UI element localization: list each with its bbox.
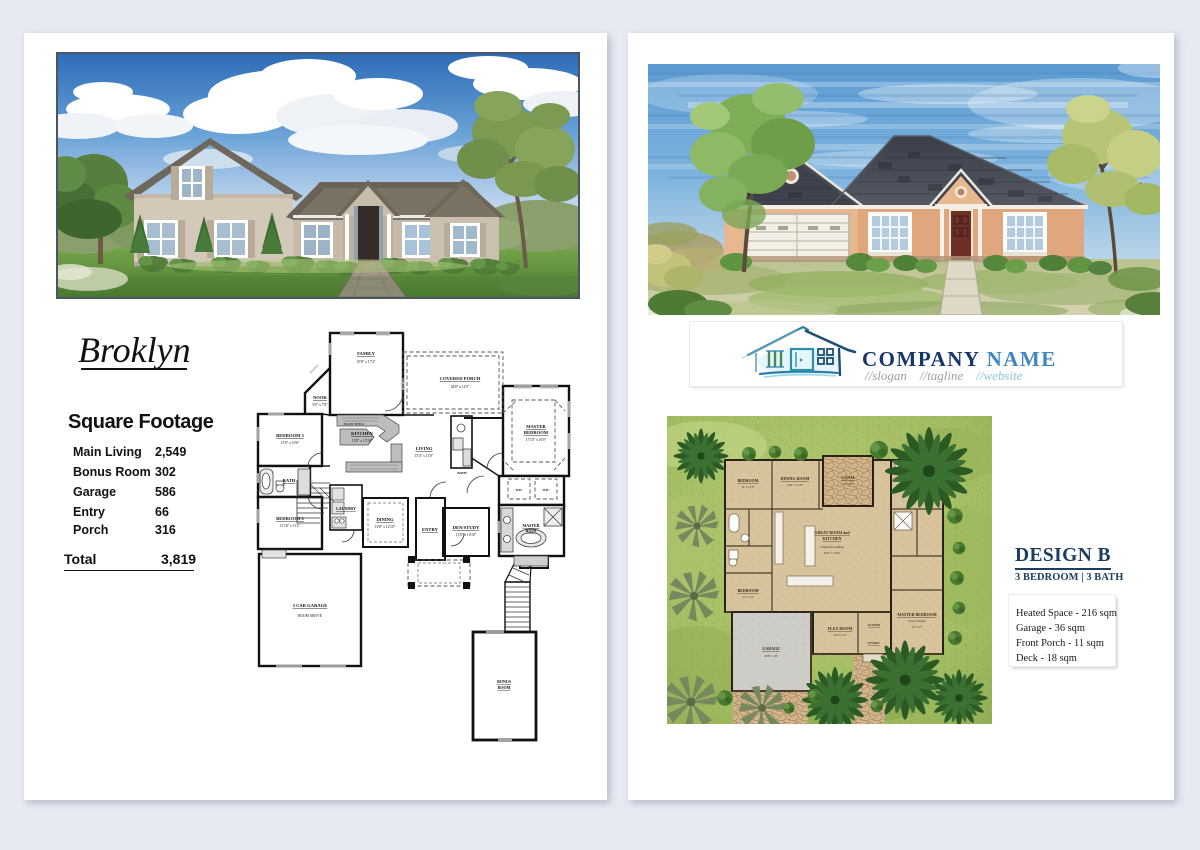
svg-text:LANAI: LANAI <box>842 475 855 480</box>
svg-text:20'4" x 19'4": 20'4" x 19'4" <box>824 551 841 555</box>
svg-text:11' x 13': 11' x 13' <box>743 595 754 599</box>
svg-text:12'6"x12'7": 12'6"x12'7" <box>841 482 857 486</box>
svg-text:LIVING: LIVING <box>416 446 433 451</box>
svg-text:BONUS: BONUS <box>497 679 512 684</box>
svg-text:BEDROOM: BEDROOM <box>737 588 758 593</box>
svg-text:DEN/STUDY: DEN/STUDY <box>453 525 480 530</box>
svg-text:13'0" x 10'10": 13'0" x 10'10" <box>456 533 477 537</box>
svg-text:GARAGE: GARAGE <box>762 646 780 651</box>
svg-text:13'0" x 10'6": 13'0" x 10'6" <box>281 441 300 445</box>
svg-text:DINING: DINING <box>376 517 394 522</box>
svg-text:COVERED PORCH: COVERED PORCH <box>440 376 481 381</box>
svg-text:GREAT ROOM and: GREAT ROOM and <box>814 530 850 535</box>
svg-text:BATH: BATH <box>283 478 296 483</box>
svg-text://slogan //tagline //web: //slogan //tagline //website <box>864 368 1023 383</box>
svg-text:WIC: WIC <box>515 488 523 492</box>
svg-text:ROOM ABOVE: ROOM ABOVE <box>298 614 323 618</box>
svg-text:DINING ROOM: DINING ROOM <box>781 476 810 481</box>
svg-text:19'8" x 17'4": 19'8" x 17'4" <box>357 360 376 364</box>
svg-text:ENTRY: ENTRY <box>422 527 439 532</box>
svg-text:20'8" x 20': 20'8" x 20' <box>764 654 778 658</box>
svg-text:FAMILY: FAMILY <box>357 351 376 356</box>
svg-text:13'8" x 13'10": 13'8" x 13'10" <box>352 439 373 443</box>
svg-text:FOYER: FOYER <box>868 623 880 627</box>
svg-text:ROOM: ROOM <box>498 685 511 690</box>
svg-text:3 CAR GARAGE: 3 CAR GARAGE <box>293 603 328 608</box>
svg-text:BATH: BATH <box>457 471 467 475</box>
svg-text:BEDROOM 3: BEDROOM 3 <box>276 433 304 438</box>
svg-text:12'0" x 11'6": 12'0" x 11'6" <box>787 483 804 487</box>
svg-text:KITCHEN: KITCHEN <box>351 431 373 436</box>
svg-text:10'8" x 12'10": 10'8" x 12'10" <box>375 525 396 529</box>
svg-text:WIC: WIC <box>542 488 550 492</box>
svg-text:12'4" x 12': 12'4" x 12' <box>833 633 847 637</box>
svg-text:LAUNDRY: LAUNDRY <box>336 506 356 511</box>
svg-text:17'10" x 16'0": 17'10" x 16'0" <box>526 438 547 442</box>
svg-text:BEDROOM: BEDROOM <box>524 430 549 435</box>
svg-text:FLEX ROOM: FLEX ROOM <box>828 626 853 631</box>
svg-text:BEDROOM: BEDROOM <box>737 478 758 483</box>
svg-text:9'0" x 7'8": 9'0" x 7'8" <box>312 403 328 407</box>
svg-text:BATH: BATH <box>525 528 537 533</box>
svg-text:PLANT SHELF: PLANT SHELF <box>344 422 365 426</box>
svg-text:13'4" x 13'0": 13'4" x 13'0" <box>415 454 434 458</box>
svg-text:NOOK: NOOK <box>313 395 327 400</box>
svg-text:MASTER: MASTER <box>526 424 546 429</box>
svg-text:34'8" x 12'0": 34'8" x 12'0" <box>451 385 470 389</box>
svg-text:11' x 13'0": 11' x 13'0" <box>741 485 755 489</box>
svg-text:14' x 17': 14' x 17' <box>912 625 923 629</box>
svg-text:Cathedral Ceilings: Cathedral Ceilings <box>820 545 845 549</box>
svg-text:Tray Ceilings: Tray Ceilings <box>908 619 926 623</box>
svg-text:BEDROOM 2: BEDROOM 2 <box>276 516 304 521</box>
svg-text:KITCHEN: KITCHEN <box>823 536 842 541</box>
svg-text:ENTRY: ENTRY <box>868 641 880 645</box>
svg-text:11'10" x 11'2": 11'10" x 11'2" <box>280 524 301 528</box>
svg-text:MASTER BEDROOM: MASTER BEDROOM <box>897 612 936 617</box>
